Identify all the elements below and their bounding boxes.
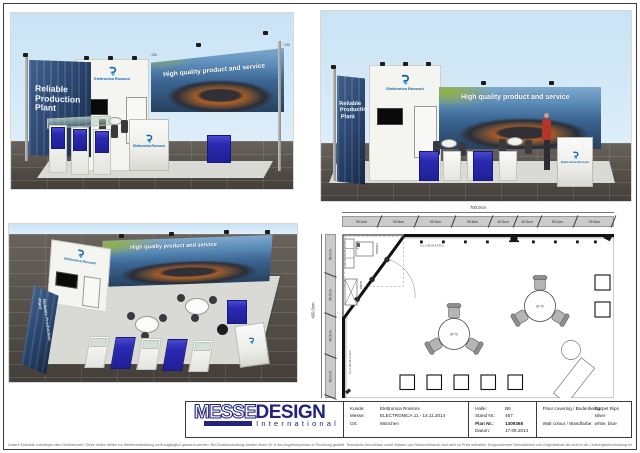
display-pedestal [443, 151, 461, 181]
dimension-band-top: 99.0cm 99.5cm 99.0cm 99.5cm 49.5cm 49.5c… [342, 216, 614, 227]
logo-subtitle: International [256, 419, 339, 428]
banner-text: High quality product and service [130, 242, 217, 251]
chair [533, 276, 547, 291]
shelf-unit [345, 239, 354, 268]
field-stand-nr: Stand Nr.:467 [475, 412, 536, 419]
blue-display-cube [95, 131, 109, 153]
tv-screen [55, 271, 78, 288]
spotlight-icon [108, 56, 113, 60]
spotlight-icon [263, 31, 268, 35]
dimension-segment: 99.5cm [576, 217, 613, 226]
chair-silhouette [177, 294, 185, 302]
banner-text: High quality product and service [461, 94, 570, 101]
reception-counter: Elettronica Rossoni [557, 137, 593, 187]
side-wall-left [342, 317, 345, 398]
side-wall-text: Reliable Production Plant [339, 101, 365, 121]
rack [345, 279, 357, 305]
dimension-segment: 99.0cm [417, 217, 454, 226]
rack-label: RACK [359, 281, 363, 289]
blue-display-cube [227, 300, 247, 324]
table-diameter-label: Ø 70 [536, 304, 543, 308]
brand-lockup: Elettronica Rossoni [370, 74, 440, 91]
truss-column [278, 41, 281, 171]
chair-silhouette [159, 314, 167, 322]
brand-logo-icon [107, 66, 118, 77]
blue-display-cube [51, 127, 65, 149]
blue-display-cube [73, 129, 87, 151]
person-legs [544, 140, 550, 170]
person-figure [541, 113, 552, 175]
dimension-segment: 99.5cm [326, 316, 335, 357]
banner-text: High quality product and service [163, 63, 265, 79]
spotlight-icon [403, 62, 408, 66]
spotlight-icon [331, 65, 336, 69]
stool-silhouette [217, 324, 228, 335]
floor-plan: 700.0cm 99.0cm 99.5cm 99.0cm 99.5cm 49.5… [308, 204, 630, 400]
field-ort: Ort:München [350, 420, 468, 427]
spotlight-icon [549, 81, 554, 85]
blue-display-cube [473, 151, 493, 181]
reception-counter [234, 322, 270, 368]
dimension-segment: 99.0cm [326, 357, 335, 397]
fridge-label: FRIDGE [375, 243, 379, 254]
truss-column [25, 57, 28, 161]
titleblock-plan-column: Halle:B6 Stand Nr.:467 Plan Nr.:1409368 … [469, 402, 537, 437]
titleblock-client-column: Kunde:Elettronica Rossoni Messe:ELECTRON… [344, 402, 469, 437]
dimension-segment: 99.0cm [343, 217, 380, 226]
brand-logo-icon [247, 337, 256, 346]
logo-bar [204, 421, 252, 426]
round-table [185, 298, 209, 315]
height-annotation: +250 [150, 53, 157, 57]
bistro-table [441, 139, 457, 148]
brand-logo-icon [399, 74, 411, 86]
height-annotation: +250 [283, 43, 290, 47]
field-wall-colour: Wall colour / Wandfarbe:white, blue [543, 420, 631, 427]
dimension-segment: 99.5cm [326, 275, 335, 316]
table-diameter-label: Ø 70 [450, 332, 457, 336]
brand-lockup: Elettronica Rossoni [130, 134, 168, 148]
dimension-segment: 49.5cm [491, 217, 515, 226]
field-kunde: Kunde:Elettronica Rossoni [350, 405, 468, 412]
messedesign-logo: MESSEDESIGN International [186, 402, 344, 437]
truss-column [333, 69, 336, 181]
spotlight-icon [84, 56, 89, 60]
field-halle: Halle:B6 [475, 405, 536, 412]
stool-symbol [562, 341, 581, 360]
render-perspective-view: Elettronica Rossoni +250 Reliable Produc… [10, 12, 294, 190]
spotlight-icon [119, 234, 124, 238]
glass-display-top [194, 342, 212, 351]
blue-display-cube [207, 135, 231, 163]
field-datum: Datum:17.09.2014 [475, 427, 536, 434]
side-wall-text: Reliable Production Plant [35, 84, 85, 115]
render-front-view: Reliable Production Plant Elettronica Ro… [320, 10, 632, 202]
brand-name: Elettronica Rossoni [130, 144, 168, 148]
info-counter: Elettronica Rossoni [129, 119, 169, 171]
back-wall-top [404, 234, 614, 237]
chair-silhouette [209, 296, 217, 304]
chair-silhouette [111, 125, 118, 138]
brand-name: Elettronica Rossoni [370, 86, 440, 91]
logo-subtitle-row: International [194, 419, 339, 428]
banner-wall-graphic: High quality product and service [99, 235, 272, 287]
spotlight-icon [265, 230, 270, 234]
brand-lockup: Elettronica Rossoni [558, 151, 592, 164]
brand-lockup [237, 335, 266, 347]
chair-silhouette [121, 120, 128, 133]
chair [447, 304, 461, 319]
illuminated-label-top: ILLUMINATED [420, 244, 444, 248]
spotlight-icon [224, 230, 229, 234]
spotlight-icon [426, 62, 431, 66]
spotlight-icon [132, 56, 137, 60]
spotlight-icon [23, 53, 28, 57]
bistro-table [507, 137, 523, 146]
storage-door [82, 276, 101, 309]
chair-silhouette [525, 140, 532, 154]
dimension-segment: 99.5cm [380, 217, 417, 226]
dimension-segment: 99.0cm [326, 235, 335, 275]
dimension-segment: 99.0cm [539, 217, 576, 226]
brand-logo-icon [571, 151, 580, 160]
disclaimer-text: Unsere Entwürfe unterliegen dem Urheberr… [8, 443, 632, 447]
brand-logo-icon [144, 134, 154, 144]
field-floor-covering: Floor covering / Bodenbelag:Carpet Rips [543, 405, 631, 412]
dimension-line [342, 212, 614, 213]
spotlight-icon [169, 232, 174, 236]
render-top-view: High quality product and service Elettro… [8, 223, 298, 383]
brand-lockup: Elettronica Rossoni [51, 245, 109, 268]
field-plan-nr: Plan Nr.:1409368 [475, 420, 536, 427]
field-floor-covering-value2: silver [543, 412, 631, 419]
dimension-total-width: 700.0cm [342, 205, 614, 210]
side-wall-text: Reliable Production Plant [37, 298, 52, 346]
title-block: MESSEDESIGN International Kunde:Elettron… [185, 401, 632, 438]
glass-display-top [142, 340, 160, 349]
side-wall-graphic: Reliable Production Plant [337, 76, 365, 185]
round-table [135, 316, 159, 333]
field-messe: Messe:ELECTRONICA 11.- 14.11.2014 [350, 412, 468, 419]
logo-part-messe: MESSE [194, 402, 256, 423]
person-torso [542, 119, 551, 140]
floor-plan-drawing: Ø 70 Ø 70 ILLUMINATED ILLUMINATED FRIDGE… [342, 234, 614, 398]
spotlight-icon [481, 81, 486, 85]
dimension-line [321, 234, 322, 398]
dimension-segment: 49.5cm [515, 217, 539, 226]
blue-display-cube [419, 151, 439, 181]
dimension-band-left: 99.0cm 99.5cm 99.5cm 99.0cm [325, 234, 336, 398]
dimension-total-height: 400.0cm [311, 288, 316, 334]
chair-silhouette [191, 314, 199, 322]
spotlight-icon [380, 62, 385, 66]
glass-display-top [90, 338, 108, 347]
wall-clamp [509, 235, 519, 242]
chair-silhouette [127, 312, 135, 320]
display-pedestal [499, 151, 517, 181]
shelf-label: SHELF [356, 241, 360, 250]
spotlight-icon [196, 43, 201, 47]
tv-screen [377, 108, 403, 125]
titleblock-finish-column: Floor covering / Bodenbelag:Carpet Rips … [537, 402, 631, 437]
dimension-segment: 99.5cm [454, 217, 491, 226]
brand-name: Elettronica Rossoni [558, 160, 592, 164]
person-head [544, 113, 549, 118]
illuminated-label-left: ILLUMINATED [348, 350, 352, 374]
